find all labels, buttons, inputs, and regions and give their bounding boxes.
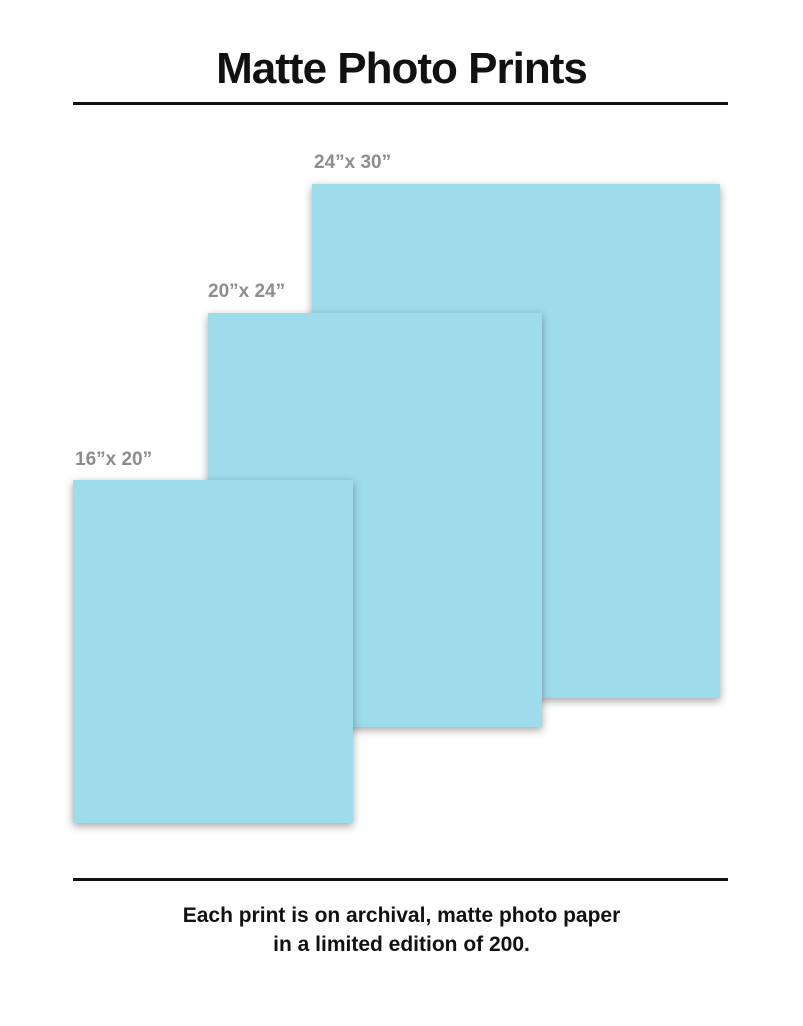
- print-swatch-16x20: [73, 480, 353, 823]
- top-divider-rule: [73, 102, 728, 105]
- matte-photo-prints-page: Matte Photo Prints 24”x 30” 20”x 24” 16”…: [0, 0, 803, 1026]
- page-title: Matte Photo Prints: [0, 44, 803, 94]
- bottom-divider-rule: [73, 878, 728, 881]
- print-size-label-20x24: 20”x 24”: [208, 281, 285, 303]
- caption: Each print is on archival, matte photo p…: [0, 901, 803, 959]
- print-size-label-16x20: 16”x 20”: [75, 449, 152, 471]
- caption-line-2: in a limited edition of 200.: [0, 930, 803, 959]
- caption-line-1: Each print is on archival, matte photo p…: [0, 901, 803, 930]
- print-size-label-24x30: 24”x 30”: [314, 152, 391, 174]
